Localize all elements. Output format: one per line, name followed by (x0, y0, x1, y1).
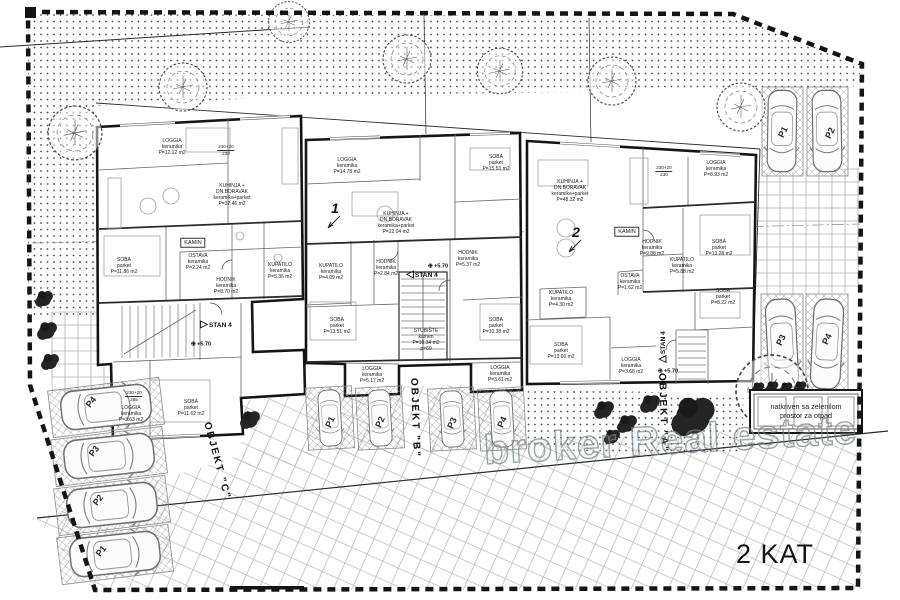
floor-plan-drawing (0, 0, 900, 600)
waste-area-line2: prostor za otpad (770, 411, 841, 420)
building-objekt-b (306, 133, 522, 396)
floor-title: 2 KAT (736, 539, 814, 570)
building-objekt-a (527, 141, 756, 384)
waste-area-label: natkriven sa zelenilom prostor za otpad (770, 402, 841, 420)
waste-area-line1: natkriven sa zelenilom (770, 402, 841, 411)
floor-plan-canvas: LOGGIAkeramikaP=12.12 m2KUHINJA +DN.BORA… (0, 0, 900, 600)
scale-bar (230, 586, 304, 590)
